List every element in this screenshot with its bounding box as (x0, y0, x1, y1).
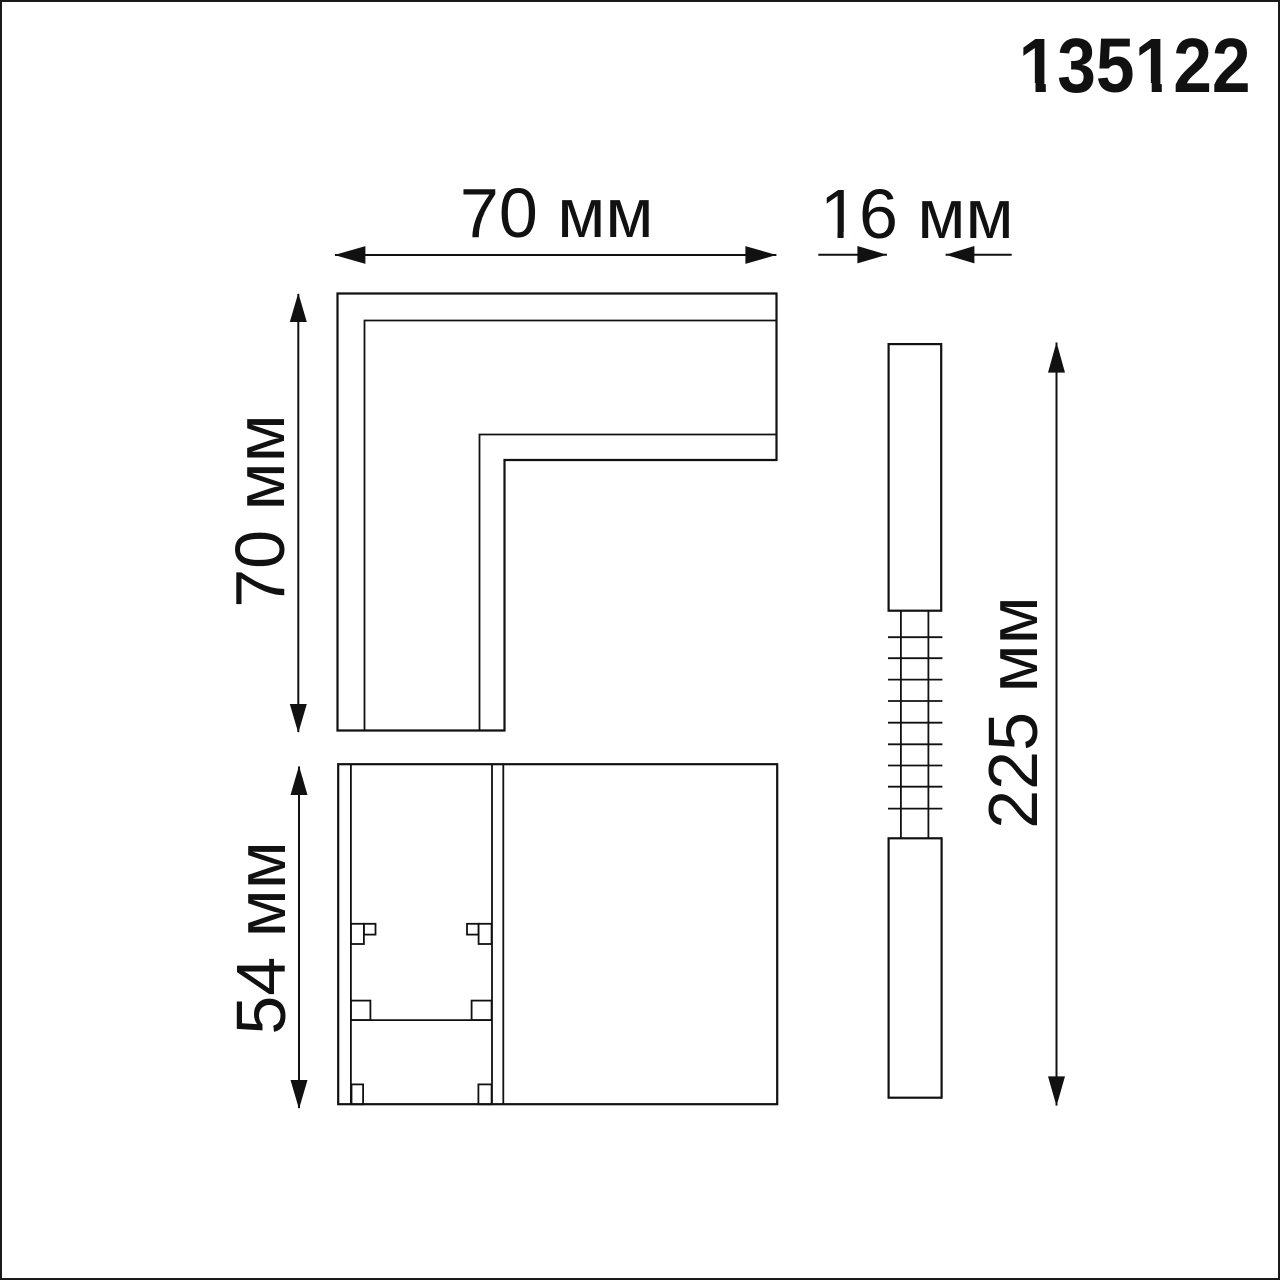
svg-text:135122: 135122 (1019, 23, 1251, 109)
svg-text:225 мм: 225 мм (974, 596, 1052, 829)
svg-text:54 мм: 54 мм (222, 841, 300, 1035)
svg-text:16 мм: 16 мм (820, 175, 1014, 253)
svg-text:70 мм: 70 мм (460, 174, 654, 252)
svg-text:70 мм: 70 мм (221, 414, 299, 608)
